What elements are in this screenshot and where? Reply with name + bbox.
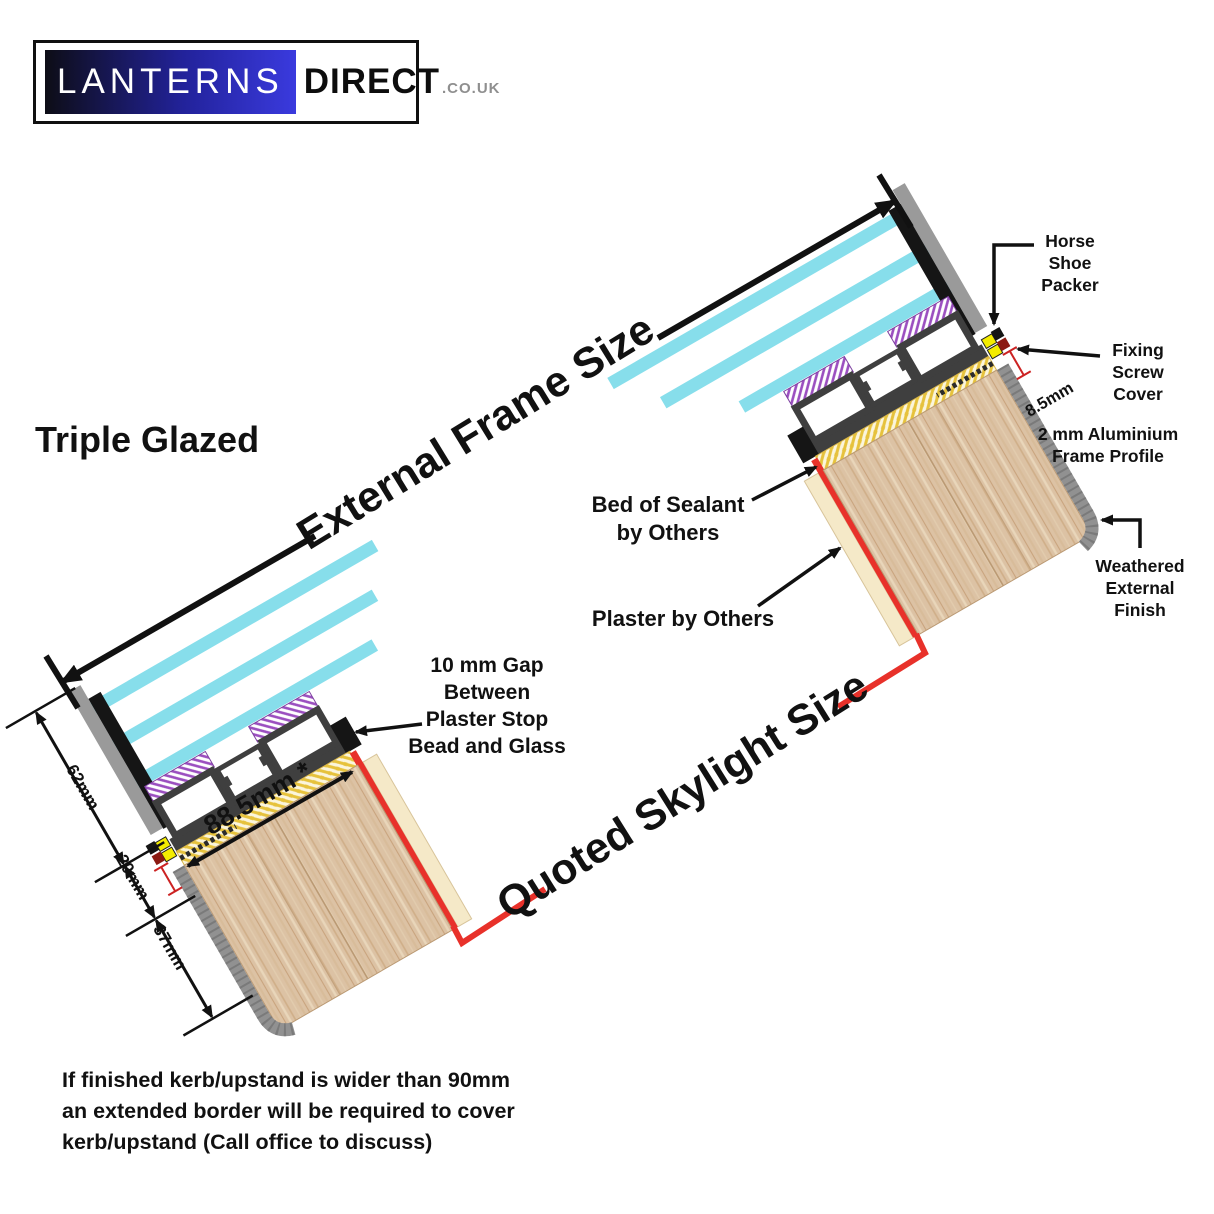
bed-of-sealant-annotation: Bed of Sealant by Others xyxy=(592,467,816,545)
svg-text:If finished kerb/upstand is wi: If finished kerb/upstand is wider than 9… xyxy=(62,1068,510,1092)
frame-height-label: 62mm xyxy=(62,761,103,813)
svg-text:Shoe: Shoe xyxy=(1049,253,1092,273)
logo-right-group: DIRECT .CO.UK xyxy=(304,62,501,102)
svg-text:Bead and Glass: Bead and Glass xyxy=(408,735,566,758)
svg-text:10 mm Gap: 10 mm Gap xyxy=(430,654,543,677)
kerb-exposure-label: 37mm xyxy=(149,921,190,973)
quoted-skylight-size-label: Quoted Skylight Size xyxy=(489,661,877,928)
svg-text:Fixing: Fixing xyxy=(1112,340,1164,360)
footer-note: If finished kerb/upstand is wider than 9… xyxy=(62,1068,515,1154)
svg-text:Plaster by Others: Plaster by Others xyxy=(592,606,774,631)
svg-text:Frame Profile: Frame Profile xyxy=(1052,446,1164,466)
logo-secondary-text: DIRECT xyxy=(304,62,440,102)
svg-text:External: External xyxy=(1105,578,1174,598)
logo-blue-panel: LANTERNS xyxy=(45,50,296,114)
svg-text:Cover: Cover xyxy=(1113,384,1163,404)
plaster-annotation: Plaster by Others xyxy=(592,548,840,631)
svg-text:Weathered: Weathered xyxy=(1095,556,1184,576)
brand-logo: LANTERNS DIRECT .CO.UK xyxy=(33,40,419,124)
glass-pane xyxy=(607,205,913,389)
svg-text:Plaster Stop: Plaster Stop xyxy=(426,708,549,731)
svg-text:Screw: Screw xyxy=(1112,362,1164,382)
svg-text:Bed of Sealant: Bed of Sealant xyxy=(592,492,745,517)
frame-base-label: 20mm xyxy=(112,851,153,903)
svg-text:kerb/upstand (Call office to d: kerb/upstand (Call office to discuss) xyxy=(62,1130,432,1154)
external-frame-size-label: External Frame Size xyxy=(289,305,663,559)
svg-text:by Others: by Others xyxy=(617,520,720,545)
dimension-terminator xyxy=(46,656,78,708)
horse-shoe-packer-annotation: Horse Shoe Packer xyxy=(994,231,1099,324)
skylight-section-diagram: External Frame Size Quoted Skylight Size… xyxy=(0,0,1214,1214)
logo-suffix-text: .CO.UK xyxy=(442,80,501,97)
lower-edge-section xyxy=(55,574,474,1049)
logo-primary-text: LANTERNS xyxy=(57,62,284,102)
svg-text:Packer: Packer xyxy=(1041,275,1099,295)
screw-offset-label: 8.5mm xyxy=(1022,379,1076,421)
weathered-finish-annotation: Weathered External Finish xyxy=(1095,520,1184,620)
svg-text:Between: Between xyxy=(444,681,530,704)
aluminium-profile-annotation: 2 mm Aluminium Frame Profile xyxy=(1038,424,1178,466)
plaster-gap-annotation: 10 mm Gap Between Plaster Stop Bead and … xyxy=(356,654,566,758)
svg-text:2 mm Aluminium: 2 mm Aluminium xyxy=(1038,424,1178,444)
svg-text:Finish: Finish xyxy=(1114,600,1166,620)
glazing-type-heading: Triple Glazed xyxy=(35,419,259,460)
svg-text:Horse: Horse xyxy=(1045,231,1095,251)
page: External Frame Size Quoted Skylight Size… xyxy=(0,0,1214,1214)
svg-text:an extended border will be req: an extended border will be required to c… xyxy=(62,1099,515,1123)
glass-pane xyxy=(86,540,378,716)
